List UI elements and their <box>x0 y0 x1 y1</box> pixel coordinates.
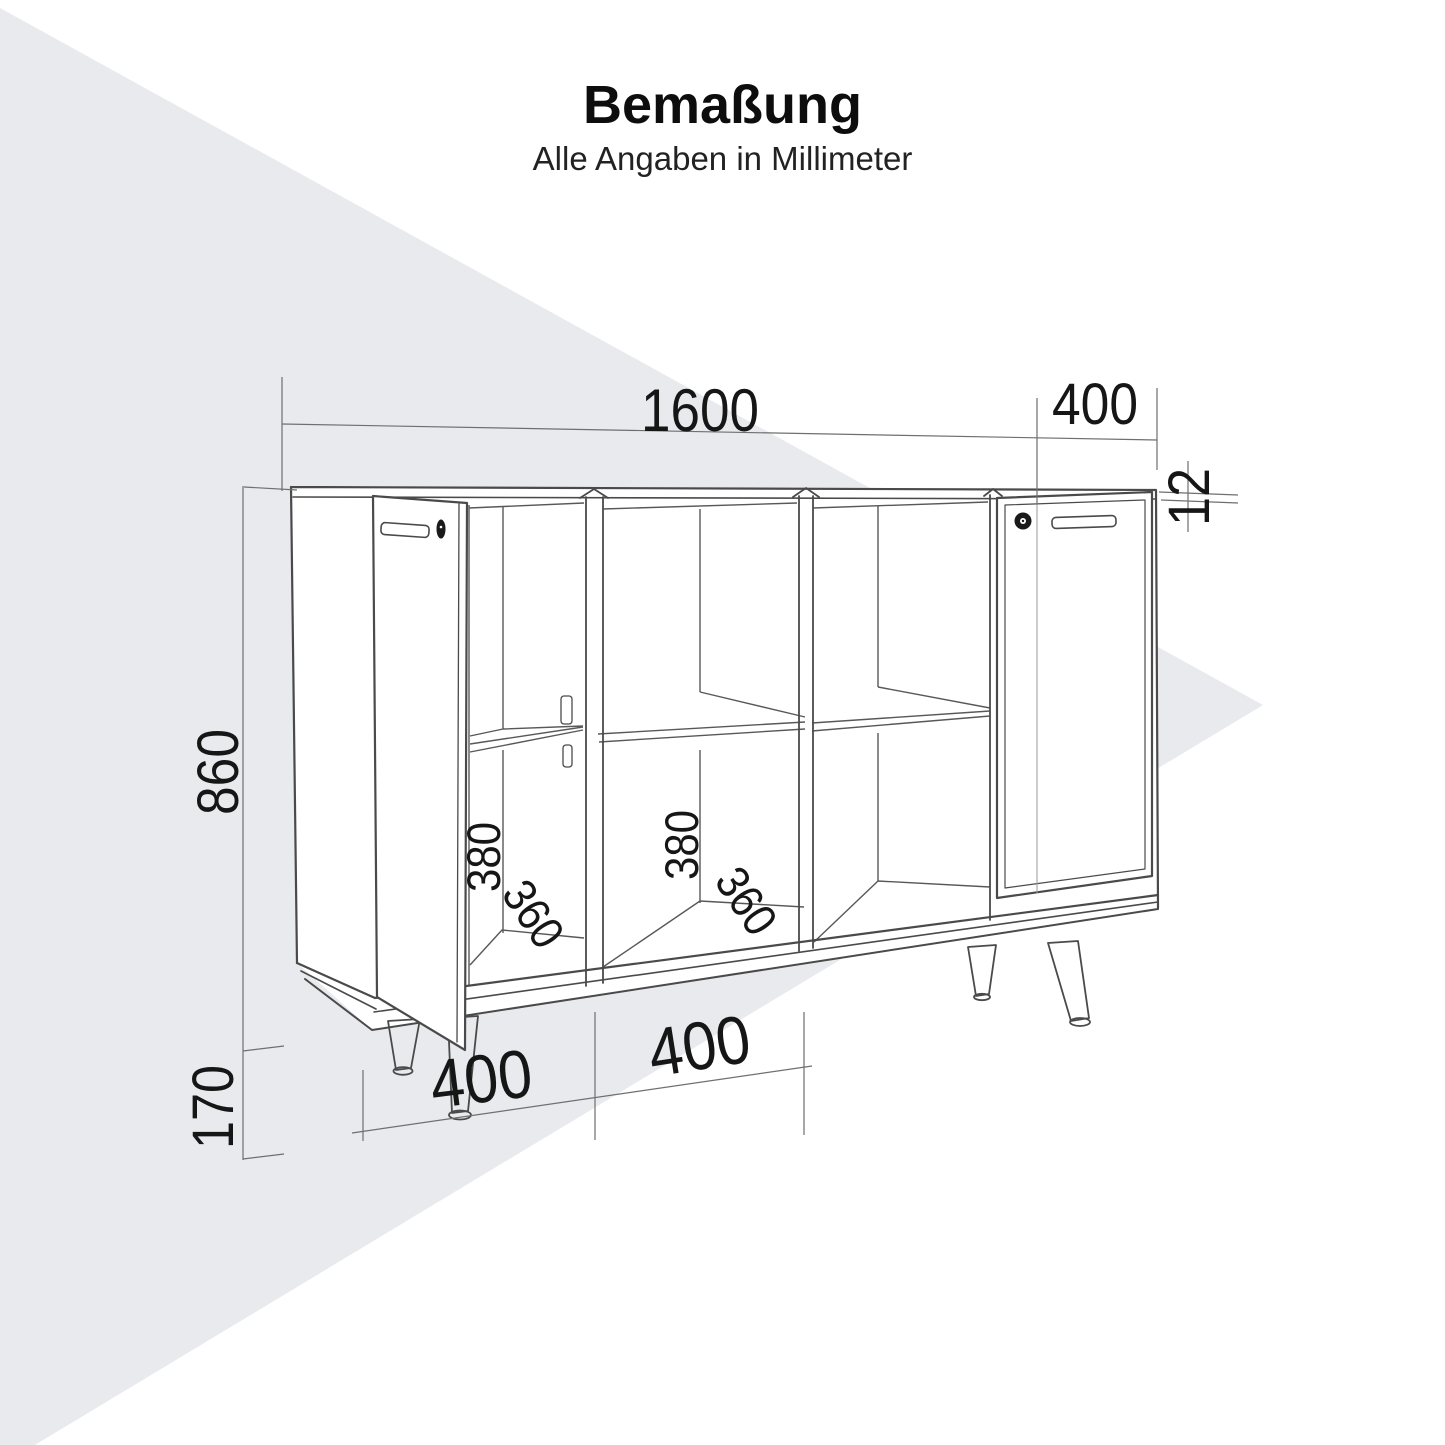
right-door <box>997 492 1152 898</box>
dim-total-width-label: 1600 <box>641 377 759 444</box>
leg-front-right <box>1048 941 1089 1021</box>
bemassung-page: Bemaßung Alle Angaben in Millimeter <box>0 0 1445 1445</box>
right-door-handle <box>1052 515 1116 528</box>
left-door-lock <box>437 520 446 539</box>
page-subtitle: Alle Angaben in Millimeter <box>0 141 1445 177</box>
left-door-handle <box>381 522 430 537</box>
dim-door-width-label: 400 <box>1052 372 1138 437</box>
left-door-open <box>373 496 467 1050</box>
dim-body-height-label: 860 <box>186 729 251 815</box>
dim-top-thickness-label: 12 <box>1157 468 1222 526</box>
header: Bemaßung Alle Angaben in Millimeter <box>0 0 1445 178</box>
hinge-lower <box>563 745 572 767</box>
dim-inner-height-mid-label: 380 <box>655 810 708 880</box>
leg-rear-right <box>968 945 996 996</box>
dim-segment-left-label: 400 <box>426 1035 537 1123</box>
dim-segment-mid-label: 400 <box>643 1001 756 1092</box>
dim-leg-height-label: 170 <box>181 1065 246 1149</box>
dim-inner-height-left-label: 380 <box>457 822 510 892</box>
hinge-upper <box>561 696 572 724</box>
dimension-drawing: 1600 400 12 860 170 380 360 380 360 400 … <box>0 0 1445 1445</box>
page-title: Bemaßung <box>0 76 1445 135</box>
